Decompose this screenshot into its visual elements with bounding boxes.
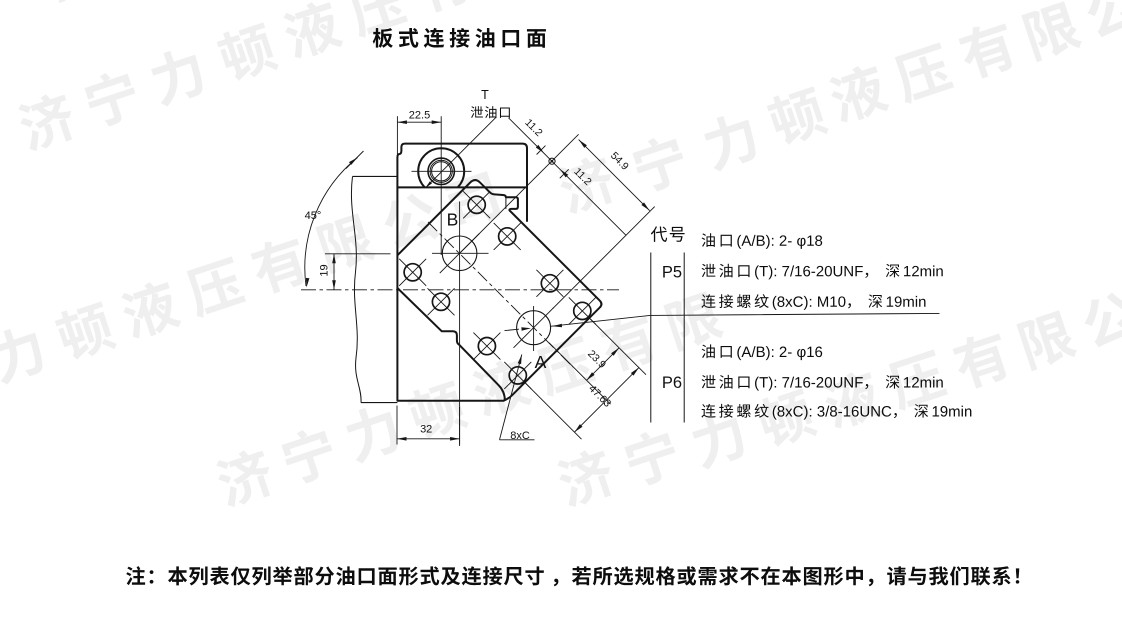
svg-text:32: 32 bbox=[420, 424, 432, 436]
svg-text:23.9: 23.9 bbox=[585, 348, 608, 371]
svg-text:45°: 45° bbox=[305, 210, 322, 222]
svg-text:A: A bbox=[535, 352, 547, 372]
svg-text:T: T bbox=[481, 88, 489, 102]
svg-text:B: B bbox=[447, 210, 459, 230]
svg-text:19: 19 bbox=[319, 264, 331, 276]
svg-text:11.2: 11.2 bbox=[522, 117, 544, 139]
svg-text:8xC: 8xC bbox=[510, 430, 530, 442]
svg-text:P5: P5 bbox=[662, 264, 682, 282]
svg-text:47.63: 47.63 bbox=[586, 383, 613, 410]
svg-text:54.9: 54.9 bbox=[608, 150, 631, 173]
svg-text:P6: P6 bbox=[662, 374, 682, 392]
svg-text:22.5: 22.5 bbox=[409, 110, 430, 122]
